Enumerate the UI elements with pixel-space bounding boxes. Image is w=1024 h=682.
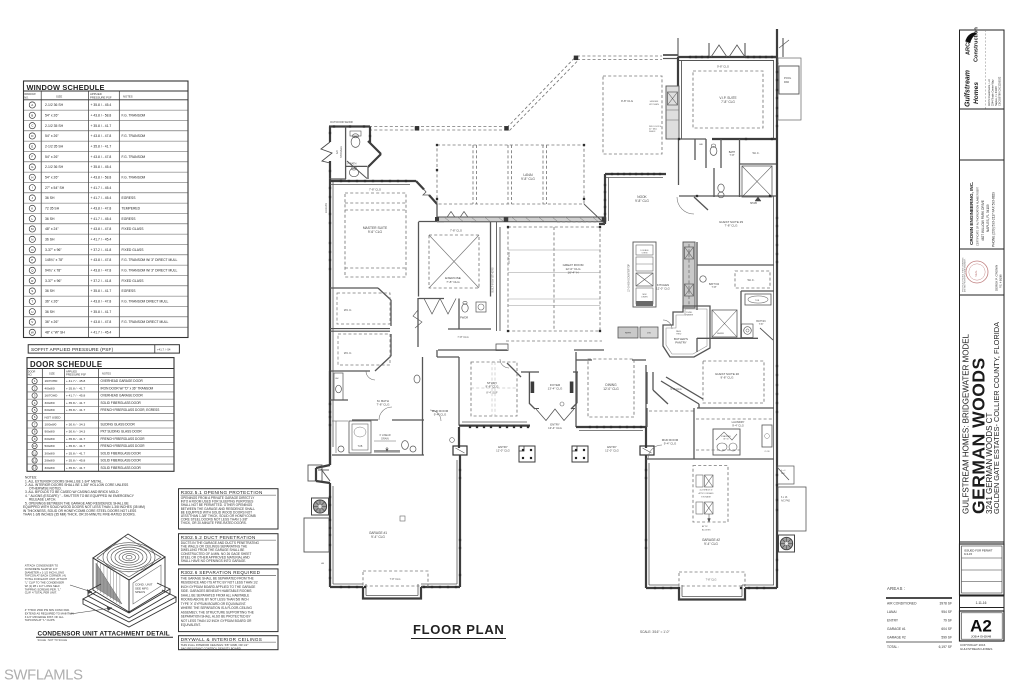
svg-text:54" x 26": 54" x 26" [45, 114, 59, 118]
svg-text:+ 35.8 / - 41.7: + 35.8 / - 41.7 [66, 386, 85, 390]
svg-text:42" TALL: 42" TALL [649, 128, 658, 131]
svg-text:POOL: POOL [784, 76, 792, 80]
svg-text:13'-4" CLG: 13'-4" CLG [548, 426, 562, 430]
svg-text:36 SH: 36 SH [45, 238, 55, 242]
svg-text:TAPCONS AT "L" CLIPS: TAPCONS AT "L" CLIPS [25, 618, 55, 622]
svg-text:9'-8" CLG: 9'-8" CLG [635, 199, 649, 203]
svg-text:+ 37.2 / - 41.8: + 37.2 / - 41.8 [91, 279, 112, 283]
svg-text:2-1/2 35 SH: 2-1/2 35 SH [45, 124, 64, 128]
svg-text:7'-8" CLG: 7'-8" CLG [725, 224, 739, 228]
svg-text:+41.7 / -54: +41.7 / -54 [157, 348, 171, 352]
svg-text:F.G. TRANSOM W/ 3" DIRECT MULL: F.G. TRANSOM W/ 3" DIRECT MULL [122, 258, 178, 262]
svg-text:9'-8" CLG: 9'-8" CLG [670, 387, 681, 391]
svg-text:+ 35.8 / - 41.7: + 35.8 / - 41.7 [91, 124, 112, 128]
svg-text:ATTACH CONDENSER TO: ATTACH CONDENSER TO [25, 564, 58, 568]
svg-text:EQUIVALENT.: EQUIVALENT. [181, 623, 201, 627]
svg-text:Homes: Homes [973, 82, 980, 104]
svg-text:F.G. TRANSOM: F.G. TRANSOM [122, 114, 146, 118]
svg-text:JOB # GH2648: JOB # GH2648 [971, 635, 992, 639]
svg-text:F.G. TRANSOM: F.G. TRANSOM [122, 176, 146, 180]
svg-text:SIZE: SIZE [49, 372, 55, 376]
svg-text:7'-8" CLG: 7'-8" CLG [706, 579, 717, 582]
svg-text:10/0x8/0: 10/0x8/0 [45, 423, 57, 427]
svg-text:W.I.C.: W.I.C. [752, 151, 759, 155]
svg-text:13: 13 [33, 466, 37, 470]
svg-text:3/0x8/0: 3/0x8/0 [45, 466, 55, 470]
svg-text:PRESSURE PSF: PRESSURE PSF [66, 373, 86, 377]
svg-text:9'-6" CLG: 9'-6" CLG [368, 230, 383, 234]
svg-text:STACKED: STACKED [721, 435, 731, 438]
svg-text:HB: HB [321, 563, 325, 565]
svg-text:FRENCH FIBERGLASS DOOR: FRENCH FIBERGLASS DOOR [101, 444, 146, 448]
svg-text:SIZE: SIZE [56, 95, 62, 99]
svg-text:SCALE : NOT TO SCALE: SCALE : NOT TO SCALE [38, 638, 68, 642]
svg-text:+ 41.7 / - 45.4: + 41.7 / - 45.4 [91, 238, 112, 242]
svg-text:6/0x8/0: 6/0x8/0 [45, 437, 55, 441]
svg-text:7'-8": 7'-8" [730, 154, 735, 157]
svg-text:GULFSTREAM HOMES: GULFSTREAM HOMES [960, 647, 992, 651]
svg-text:9'-8" CLG: 9'-8" CLG [621, 99, 633, 103]
svg-text:SHELF: SHELF [649, 131, 656, 133]
svg-text:THAN 1-3/8 INCHES (35 MM) THIC: THAN 1-3/8 INCHES (35 MM) THICK, OR 20-M… [23, 512, 136, 516]
svg-text:9'-8" CLG: 9'-8" CLG [721, 376, 735, 380]
svg-text:SLIDING GLASS DOOR: SLIDING GLASS DOOR [101, 423, 136, 427]
svg-text:3/0x8/0: 3/0x8/0 [45, 401, 55, 405]
svg-text:W.I.C.: W.I.C. [747, 278, 754, 282]
svg-text:+ 41.7 / - 45.4: + 41.7 / - 45.4 [91, 331, 112, 335]
svg-text:11: 11 [33, 451, 36, 455]
svg-text:OVEN: OVEN [642, 253, 648, 255]
svg-text:9'-8" CLG: 9'-8" CLG [486, 385, 500, 389]
svg-text:T: T [31, 299, 33, 303]
svg-text:+ 30.6 / - 34.3: + 30.6 / - 34.3 [66, 430, 85, 434]
svg-text:TUB: TUB [755, 300, 760, 302]
svg-text:F: F [31, 155, 33, 159]
svg-text:2-1/2 35 SH: 2-1/2 35 SH [45, 145, 64, 149]
svg-text:+ 35.8 / - 41.7: + 35.8 / - 41.7 [66, 451, 85, 455]
svg-text:+ 35.8 / - 41.7: + 35.8 / - 41.7 [91, 289, 112, 293]
svg-text:TOTAL :: TOTAL : [887, 645, 899, 649]
svg-text:ATTIC: ATTIC [702, 525, 708, 528]
svg-text:NO.: NO. [28, 374, 33, 377]
svg-text:36 SH: 36 SH [45, 289, 55, 293]
svg-text:12'-0" CLG: 12'-0" CLG [656, 287, 670, 291]
svg-text:Construction: Construction [974, 27, 980, 62]
svg-text:12'-0" CLG: 12'-0" CLG [496, 449, 510, 453]
svg-text:10: 10 [33, 444, 37, 448]
svg-text:SOFFIT APPLIED PRESSURE (PSF): SOFFIT APPLIED PRESSURE (PSF) [31, 347, 114, 352]
svg-text:KITCHEN: KITCHEN [649, 104, 659, 106]
svg-text:P.E. # 56268: P.E. # 56268 [1000, 274, 1003, 288]
svg-text:CONCRETE SLAB W/ 1/4": CONCRETE SLAB W/ 1/4" [25, 567, 58, 571]
svg-text:WINDOW SCHEDULE: WINDOW SCHEDULE [27, 83, 105, 92]
svg-text:12'-0" CLG: 12'-0" CLG [603, 387, 619, 391]
svg-text:7'-8": 7'-8" [759, 324, 764, 326]
svg-text:R302.6 SEPARATION REQUIRED: R302.6 SEPARATION REQUIRED [181, 570, 261, 575]
svg-text:4x4 SPACE @: 4x4 SPACE @ [700, 489, 713, 492]
svg-text:SPECS: SPECS [135, 590, 145, 594]
svg-text:NOTES: NOTES [102, 372, 111, 376]
svg-text:36" x 26": 36" x 26" [45, 320, 59, 324]
svg-text:94¾" x 78": 94¾" x 78" [45, 269, 62, 273]
svg-text:3-37" x 96": 3-37" x 96" [45, 248, 62, 252]
svg-text:F.G. TRANSOM DIRECT MULL: F.G. TRANSOM DIRECT MULL [122, 320, 169, 324]
svg-text:DRWR: DRWR [641, 297, 648, 299]
svg-text:F.G. TRANSOM W/ 3" DIRECT MULL: F.G. TRANSOM W/ 3" DIRECT MULL [122, 269, 178, 273]
svg-text:54" x 26": 54" x 26" [45, 134, 59, 138]
svg-text:W: W [31, 330, 34, 334]
svg-text:A/C PAD: A/C PAD [781, 500, 790, 503]
svg-text:16/7OHD: 16/7OHD [45, 379, 59, 383]
svg-text:GARAGE #1: GARAGE #1 [887, 627, 906, 631]
svg-text:CLOS: CLOS [764, 451, 770, 453]
svg-text:PKT SLIDING GLASS DOOR: PKT SLIDING GLASS DOOR [101, 430, 143, 434]
svg-text:FIXED GLASS: FIXED GLASS [122, 279, 145, 283]
svg-text:7'-8" CLG: 7'-8" CLG [369, 188, 381, 192]
svg-text:PAD: PAD [781, 472, 786, 475]
svg-text:+ 43.8 / - 47.8: + 43.8 / - 47.8 [91, 207, 112, 211]
svg-text:S: S [31, 289, 33, 293]
svg-text:+ 35.8 / - 45.8: + 35.8 / - 45.8 [66, 459, 85, 463]
svg-text:TOTAL FOR EACH UNIT. ATTACH: TOTAL FOR EACH UNIT. ATTACH [25, 577, 67, 581]
svg-text:12'-0" CLG: 12'-0" CLG [508, 252, 511, 264]
svg-text:3 1/4" MIN EDGE DIST. OF ALL: 3 1/4" MIN EDGE DIST. OF ALL [25, 615, 65, 619]
svg-text:WINDOW: WINDOW [24, 92, 36, 96]
svg-text:REFR: REFR [625, 333, 631, 335]
svg-text:ACCESS: ACCESS [702, 529, 711, 532]
svg-text:+ 35.8 / - 45.4: + 35.8 / - 45.4 [91, 103, 112, 107]
svg-text:+ 35.8 / - 41.7: + 35.8 / - 41.7 [66, 466, 85, 470]
svg-text:+ 30.6 / - 34.3: + 30.6 / - 34.3 [66, 423, 85, 427]
svg-text:NOT USED: NOT USED [45, 415, 62, 419]
svg-text:+ 35.8 / - 41.7: + 35.8 / - 41.7 [91, 310, 112, 314]
svg-text:9'-4" CLG: 9'-4" CLG [704, 542, 718, 546]
svg-text:7'-8": 7'-8" [712, 286, 717, 289]
svg-text:+ 43.8 / - 47.8: + 43.8 / - 47.8 [91, 227, 112, 231]
svg-text:SOLID FIBERGLASS DOOR: SOLID FIBERGLASS DOOR [101, 466, 142, 470]
svg-text:+ 37.2 / - 41.8: + 37.2 / - 41.8 [91, 248, 112, 252]
svg-text:+ 43.8 / - 58.8: + 43.8 / - 58.8 [91, 176, 112, 180]
svg-text:SOLID FIBERGLASS DOOR: SOLID FIBERGLASS DOOR [101, 451, 142, 455]
svg-text:599 SF: 599 SF [941, 636, 952, 640]
svg-text:6,197 SF: 6,197 SF [939, 645, 952, 649]
svg-text:+ 43.8 / - 47.8: + 43.8 / - 47.8 [91, 269, 112, 273]
svg-text:STORAGE: STORAGE [340, 146, 343, 158]
svg-text:1-11-16: 1-11-16 [976, 601, 987, 605]
svg-text:DRYWALL & INTERIOR CEILINGS: DRYWALL & INTERIOR CEILINGS [181, 637, 263, 642]
svg-text:NAPLES, FL 34109: NAPLES, FL 34109 [986, 204, 990, 232]
svg-text:3-37" x 96": 3-37" x 96" [45, 279, 62, 283]
svg-text:9'-4" CLG: 9'-4" CLG [732, 423, 744, 427]
svg-text:AIR CONDITIONED: AIR CONDITIONED [887, 602, 917, 606]
svg-text:+ 35.8 / - 41.7: + 35.8 / - 41.7 [66, 437, 85, 441]
svg-text:U: U [31, 310, 33, 314]
svg-text:CERTIFICATE OF AUTHORIZATION N: CERTIFICATE OF AUTHORIZATION NUMBER 8597 [977, 186, 980, 246]
svg-text:K: K [31, 206, 33, 210]
svg-text:PAD: PAD [784, 80, 789, 84]
svg-text:2/8x8/0: 2/8x8/0 [45, 459, 55, 463]
svg-text:N: N [31, 237, 33, 241]
svg-text:DRAIN: DRAIN [381, 437, 389, 440]
svg-text:+ 41.7 / - 45.4: + 41.7 / - 45.4 [91, 196, 112, 200]
svg-text:36 SH: 36 SH [45, 217, 55, 221]
svg-text:9'-4" CLG: 9'-4" CLG [371, 535, 385, 539]
svg-text:Gulfstream: Gulfstream [965, 70, 972, 107]
svg-text:8'-4" SOF: 8'-4" SOF [486, 391, 498, 395]
svg-text:+ 43.8 / - 47.8: + 43.8 / - 47.8 [91, 258, 112, 262]
svg-text:+ 43.8 / - 47.8: + 43.8 / - 47.8 [91, 300, 112, 304]
svg-text:EXTEND AS REQUIRED TO MAINTAIN: EXTEND AS REQUIRED TO MAINTAIN [25, 611, 74, 615]
svg-text:145¾" x 78": 145¾" x 78" [45, 258, 64, 262]
svg-text:R302.5.2 DUCT PENETRATION: R302.5.2 DUCT PENETRATION [181, 535, 256, 540]
svg-text:36 SH: 36 SH [45, 310, 55, 314]
svg-text:W.I.C.: W.I.C. [344, 351, 352, 355]
svg-text:IRON DOOR W/ "D" x 36" TRANSOM: IRON DOOR W/ "D" x 36" TRANSOM [101, 386, 154, 390]
svg-text:NOTES: NOTES [123, 95, 133, 99]
svg-text:CONDENSOR UNIT ATTACHMENT DETA: CONDENSOR UNIT ATTACHMENT DETAIL [38, 630, 170, 637]
svg-text:2-1/2 36 SH: 2-1/2 36 SH [45, 165, 64, 169]
svg-text:P: P [31, 258, 33, 262]
svg-text:DEREK P. CRONIN: DEREK P. CRONIN [995, 265, 999, 291]
svg-text:6/0x8/0: 6/0x8/0 [45, 408, 55, 412]
svg-text:EGRESS: EGRESS [325, 203, 328, 213]
svg-text:79 SF: 79 SF [943, 619, 952, 623]
svg-text:6 x 16: 6 x 16 [781, 497, 788, 499]
svg-text:9'-8" CLG: 9'-8" CLG [521, 177, 535, 181]
svg-text:+ 41.7 / - 45.4: + 41.7 / - 45.4 [91, 186, 112, 190]
svg-text:CRONIN ENGINEERING, INC.: CRONIN ENGINEERING, INC. [969, 182, 974, 245]
svg-text:B: B [31, 113, 33, 117]
svg-text:HIDDEN: HIDDEN [650, 101, 659, 103]
svg-text:9'-4" CLG: 9'-4" CLG [434, 413, 447, 417]
svg-text:AREAS :: AREAS : [887, 586, 906, 591]
svg-text:+ 43.8 / - 58.8: + 43.8 / - 58.8 [91, 114, 112, 118]
svg-text:EGRESS: EGRESS [122, 217, 137, 221]
svg-text:12'-0" CLG: 12'-0" CLG [605, 449, 619, 453]
svg-text:TAPPING SCREWS PER. "L": TAPPING SCREWS PER. "L" [25, 587, 61, 591]
svg-text:FRENCH FIBERGLASS DOOR, EGRESS: FRENCH FIBERGLASS DOOR, EGRESS [101, 408, 160, 412]
svg-text:54" x 26": 54" x 26" [45, 176, 59, 180]
svg-text:4/0x8/0: 4/0x8/0 [45, 386, 55, 390]
svg-text:12'-0 HIGH COUNTERTOP: 12'-0 HIGH COUNTERTOP [629, 264, 631, 293]
svg-text:SCALE: 3/16" = 1'-0": SCALE: 3/16" = 1'-0" [640, 630, 670, 634]
svg-text:TEMPERED: TEMPERED [122, 207, 141, 211]
svg-text:+ 41.7 / - 45.8: + 41.7 / - 45.8 [66, 379, 85, 383]
svg-text:CBC058769 CBC1255532: CBC058769 CBC1255532 [999, 76, 1002, 106]
svg-text:THICK, OR 20-MINUTE FIRE-RATED: THICK, OR 20-MINUTE FIRE-RATED DOORS. [181, 521, 247, 525]
svg-text:3978 SF: 3978 SF [940, 602, 952, 606]
svg-text:W / D: W / D [723, 439, 729, 441]
svg-text:+ 35.8 / - 41.7: + 35.8 / - 41.7 [66, 401, 85, 405]
svg-text:CLIP. 4 TOTAL PER UNIT.: CLIP. 4 TOTAL PER UNIT. [25, 591, 57, 595]
svg-text:7'-8" CLG: 7'-8" CLG [377, 403, 391, 407]
svg-text:+ 35.8 / - 41.7: + 35.8 / - 41.7 [66, 408, 85, 412]
svg-text:16/7OHD: 16/7OHD [45, 394, 59, 398]
svg-text:PWDR: PWDR [460, 316, 468, 320]
svg-text:LAV: LAV [699, 143, 704, 146]
svg-text:DRAWER: DRAWER [685, 313, 694, 316]
svg-text:+ 43.8 / - 47.8: + 43.8 / - 47.8 [91, 320, 112, 324]
svg-text:I: I [32, 186, 33, 190]
svg-text:SOLID FIBERGLASS DOOR: SOLID FIBERGLASS DOOR [101, 401, 142, 405]
svg-text:+ 35.8 / - 41.7: + 35.8 / - 41.7 [66, 444, 85, 448]
svg-text:F.G. TRANSOM: F.G. TRANSOM [122, 155, 146, 159]
svg-text:+ 35.8 / - 45.4: + 35.8 / - 45.4 [91, 165, 112, 169]
svg-text:7'-8" CLG: 7'-8" CLG [721, 100, 735, 104]
svg-text:9/0x8/0: 9/0x8/0 [45, 430, 55, 434]
svg-text:W.I.C.: W.I.C. [344, 308, 352, 312]
svg-text:+ 41.7 / - 45.8: + 41.7 / - 45.8 [66, 394, 85, 398]
svg-text:+ 35.8 / - 41.7: + 35.8 / - 41.7 [91, 145, 112, 149]
svg-text:16'-4" H: 16'-4" H [568, 271, 579, 275]
svg-text:LANAI: LANAI [887, 610, 897, 614]
svg-text:954 SF: 954 SF [941, 610, 952, 614]
svg-text:V: V [31, 320, 33, 324]
svg-text:STORAGE: STORAGE [701, 496, 711, 499]
svg-text:GOLDEN GATE ESTATES- COLLIER C: GOLDEN GATE ESTATES- COLLIER COUNTY, FLO… [992, 322, 1001, 514]
svg-text:F.G. TRANSOM DIRECT MULL: F.G. TRANSOM DIRECT MULL [122, 300, 169, 304]
svg-text:E: E [31, 144, 33, 148]
svg-text:FLOOR PLAN: FLOOR PLAN [413, 622, 505, 637]
svg-text:36" x 26": 36" x 26" [45, 300, 59, 304]
svg-text:F.G. TRANSOM: F.G. TRANSOM [122, 134, 146, 138]
svg-text:H: H [31, 175, 33, 179]
svg-text:A: A [31, 103, 33, 107]
svg-text:FRENCH FIBERGLASS DOOR: FRENCH FIBERGLASS DOOR [101, 437, 146, 441]
svg-text:12: 12 [33, 458, 37, 462]
svg-text:9'-8" CLG: 9'-8" CLG [717, 65, 729, 69]
svg-text:48" x "W" SH: 48" x "W" SH [45, 331, 65, 335]
svg-text:SHWR: SHWR [717, 333, 724, 335]
svg-text:NO.: NO. [24, 96, 29, 100]
svg-text:2-1/2 36 SH: 2-1/2 36 SH [45, 103, 64, 107]
svg-text:OVERHEAD GARAGE DOOR: OVERHEAD GARAGE DOOR [101, 394, 144, 398]
svg-text:SWFLAMLS: SWFLAMLS [4, 668, 83, 682]
svg-text:+ 43.8 / - 47.8: + 43.8 / - 47.8 [91, 155, 112, 159]
svg-text:5/0x8/0: 5/0x8/0 [45, 444, 55, 448]
svg-text:SAG RESISTANT CONTROL DENSITY: SAG RESISTANT CONTROL DENSITY BOARD [181, 647, 241, 651]
svg-text:SEAL: SEAL [974, 270, 978, 277]
svg-text:EGRESS: EGRESS [122, 289, 137, 293]
svg-text:ATTIC FOR AND: ATTIC FOR AND [698, 492, 714, 495]
svg-text:7'-8" CLG: 7'-8" CLG [446, 280, 460, 284]
svg-text:THRU: THRU [676, 333, 682, 335]
svg-text:36 SH: 36 SH [45, 196, 55, 200]
svg-text:FIXED GLASS: FIXED GLASS [122, 248, 145, 252]
svg-text:+ 41.7 / - 45.4: + 41.7 / - 45.4 [91, 217, 112, 221]
svg-text:BUILT-IN BY OTHERS: BUILT-IN BY OTHERS [492, 267, 495, 293]
svg-text:7'-8" CLG: 7'-8" CLG [450, 229, 462, 233]
svg-text:R302.5.1 OPENING PROTECTION: R302.5.1 OPENING PROTECTION [181, 490, 263, 495]
svg-text:ENTRY: ENTRY [887, 619, 899, 623]
svg-text:BATH #4: BATH #4 [756, 320, 766, 323]
svg-text:7'-8" CLG: 7'-8" CLG [390, 578, 401, 581]
svg-text:604 SF: 604 SF [941, 627, 952, 631]
svg-text:PRESSURE PSF: PRESSURE PSF [90, 96, 112, 100]
svg-text:72 35 SH: 72 35 SH [45, 207, 60, 211]
svg-text:"L" CLIP TO THE CONDENSER: "L" CLIP TO THE CONDENSER [25, 581, 64, 585]
svg-text:A2: A2 [970, 617, 992, 636]
svg-text:DIAMETER x 1-1/2 INCH LONG: DIAMETER x 1-1/2 INCH LONG [25, 570, 64, 574]
svg-text:4627 WILLOW PARK DRIVE: 4627 WILLOW PARK DRIVE [981, 200, 985, 241]
svg-text:TAPCON AT EACH CORNER. (4): TAPCON AT EACH CORNER. (4) [25, 574, 66, 578]
svg-text:DOOR SCHEDULE: DOOR SCHEDULE [30, 360, 102, 369]
svg-text:PANTRY: PANTRY [675, 341, 687, 345]
svg-text:SHALL HAVE NO OPENINGS INTO GA: SHALL HAVE NO OPENINGS INTO GARAGE. [181, 559, 247, 563]
svg-text:GARAGE #2: GARAGE #2 [887, 636, 906, 640]
svg-text:13'-4" CLG: 13'-4" CLG [548, 387, 563, 391]
svg-text:OUTDOOR SHWR: OUTDOOR SHWR [330, 120, 353, 124]
svg-text:27" x 54" SH: 27" x 54" SH [45, 186, 65, 190]
svg-text:9-3-15: 9-3-15 [964, 552, 973, 556]
svg-text:FIXED GLASS: FIXED GLASS [122, 227, 145, 231]
svg-text:EGRESS: EGRESS [122, 196, 137, 200]
svg-text:7'-8" CLG: 7'-8" CLG [457, 335, 468, 339]
svg-text:OVERHEAD GARAGE DOOR: OVERHEAD GARAGE DOOR [101, 379, 144, 383]
svg-text:TUB: TUB [358, 445, 363, 448]
svg-text:3/0x8/0: 3/0x8/0 [45, 451, 55, 455]
svg-text:SHWR: SHWR [750, 203, 757, 205]
svg-text:PHONE (239) 593-2117 FAX 5: PHONE (239) 593-2117 FAX 593-8829 [992, 192, 996, 247]
svg-text:9'-4" CLG: 9'-4" CLG [664, 442, 677, 446]
svg-text:48" x 24": 48" x 24" [45, 227, 59, 231]
svg-text:A/C: A/C [336, 150, 339, 154]
svg-text:54" x 26": 54" x 26" [45, 155, 59, 159]
svg-text:4" THICK 2500 PSI MIN CONC PAD: 4" THICK 2500 PSI MIN CONC PAD. [25, 608, 70, 612]
svg-text:+ 43.8 / - 47.8: + 43.8 / - 47.8 [91, 134, 112, 138]
svg-text:W/ (1) #8 x 1/2" LONG SELF: W/ (1) #8 x 1/2" LONG SELF [25, 584, 61, 588]
svg-text:SOLID FIBERGLASS DOOR: SOLID FIBERGLASS DOOR [101, 459, 142, 463]
